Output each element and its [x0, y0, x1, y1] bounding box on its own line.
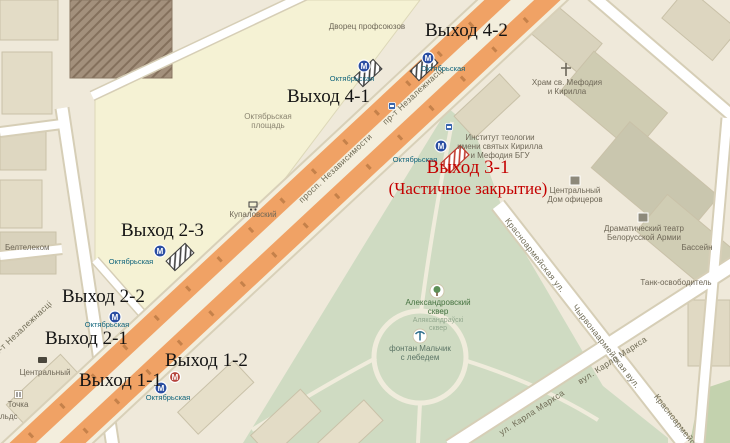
metro-icon-12-closed[interactable]: М — [170, 372, 181, 383]
tochka-label: Точка — [8, 400, 29, 409]
theater-label-line2: Белорусской Армии — [604, 233, 684, 242]
map-canvas[interactable]: М М М М М М М Выход 4-2 Выход 4-1 Выход … — [0, 0, 730, 443]
officers-house-line1: Центральный — [547, 186, 602, 195]
fountain-label-line1: фонтан Мальчик — [389, 344, 451, 353]
edge-label-fragment: льдс — [0, 412, 18, 421]
store-icon — [38, 357, 47, 363]
theater-label-line1: Драматический театр — [604, 224, 684, 233]
svg-text:М: М — [157, 247, 164, 256]
exit-label-4-1: Выход 4-1 — [287, 86, 370, 108]
svg-text:М: М — [172, 373, 179, 382]
church-label-line1: Храм св. Мефодия — [532, 78, 602, 87]
park-label-be: Аляксандраўскі сквер — [413, 317, 463, 333]
fountain-label: фонтан Мальчик с лебедем — [389, 344, 451, 362]
svg-text:М: М — [425, 54, 432, 63]
park-label-be-line1: Аляксандраўскі — [413, 317, 463, 325]
fountain-label-line2: с лебедем — [389, 353, 451, 362]
theater-icon — [638, 213, 648, 222]
exit-label-4-2: Выход 4-2 — [425, 20, 508, 42]
station-label-oktyabrskaya: Октябрьская — [421, 65, 466, 74]
park-label-ru: Александровский сквер — [405, 298, 470, 316]
church-label: Храм св. Мефодия и Кирилла — [532, 78, 602, 96]
square-label: Октябрьская площадь — [244, 112, 291, 130]
beltelecom-label: Белтелеком — [5, 243, 50, 252]
tree-icon — [430, 284, 444, 298]
square-label-line2: площадь — [244, 121, 291, 130]
park-label-ru-line1: Александровский — [405, 298, 470, 307]
tsentralny-label: Центральный — [20, 368, 71, 377]
exit-label-2-3: Выход 2-3 — [121, 220, 204, 242]
metro-icon-42[interactable]: М — [422, 52, 434, 64]
kupalovsky-label: Купаловский — [229, 210, 276, 219]
park-label-ru-line2: сквер — [405, 307, 470, 316]
officers-house-label: Центральный Дом офицеров — [547, 186, 602, 204]
exit-label-2-2: Выход 2-2 — [62, 286, 145, 308]
restaurant-icon — [15, 391, 23, 399]
transit-stop-icon[interactable] — [446, 124, 453, 131]
metro-icon-41[interactable]: М — [358, 60, 370, 72]
svg-text:М: М — [361, 62, 368, 71]
station-label-oktyabrskaya: Октябрьская — [146, 394, 191, 403]
pool-label: Бассейн — [681, 243, 712, 252]
church-label-line2: и Кирилла — [532, 87, 602, 96]
institute-label-line1: Институт теологии — [457, 133, 543, 142]
park-label-be-line2: сквер — [413, 325, 463, 333]
exit-label-2-1: Выход 2-1 — [45, 328, 128, 350]
palace-unions-label: Дворец профсоюзов — [329, 22, 405, 31]
officers-house-line2: Дом офицеров — [547, 195, 602, 204]
exit-label-3-1: Выход 3-1 (Частичное закрытие) — [389, 157, 548, 199]
station-label-oktyabrskaya: Октябрьская — [330, 75, 375, 84]
svg-text:М: М — [438, 142, 445, 151]
theater-label: Драматический театр Белорусской Армии — [604, 224, 684, 242]
exit-3-1-note: (Частичное закрытие) — [389, 179, 548, 199]
exit-3-1-title: Выход 3-1 — [389, 157, 548, 179]
station-label-oktyabrskaya: Октябрьская — [109, 258, 154, 267]
institute-label-line2: имени святых Кирилла — [457, 142, 543, 151]
officers-house-icon — [570, 176, 580, 185]
tank-monument-label: Танк-освободитель — [640, 278, 711, 287]
exit-label-1-1: Выход 1-1 — [79, 370, 162, 392]
metro-icon-23[interactable]: М — [154, 245, 166, 257]
exit-label-1-2: Выход 1-2 — [165, 350, 248, 372]
metro-icon-31[interactable]: М — [435, 140, 447, 152]
square-label-line1: Октябрьская — [244, 112, 291, 121]
